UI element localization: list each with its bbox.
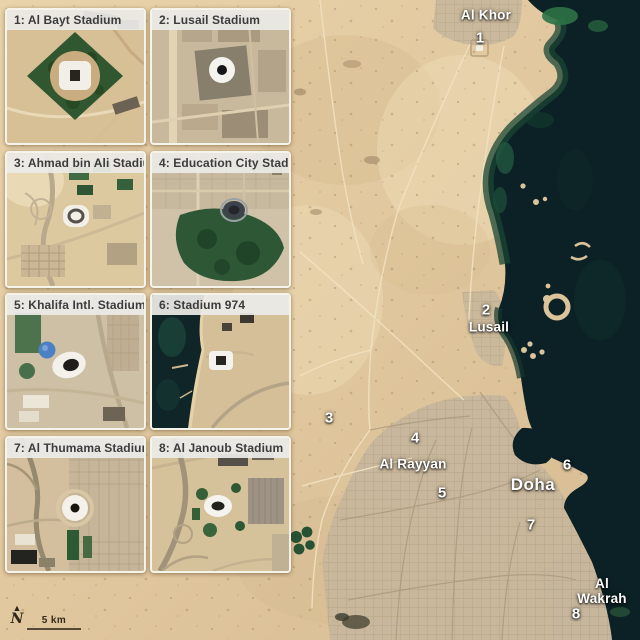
scale-bar-label: 5 km — [27, 615, 81, 626]
map-marker-8: 8 — [572, 606, 580, 623]
map-marker-5: 5 — [438, 485, 446, 502]
map-label-al-khor: Al Khor — [461, 8, 511, 23]
inset-panel-title: 5: Khalifa Intl. Stadium — [7, 295, 144, 315]
inset-panel-khalifa: 5: Khalifa Intl. Stadium — [5, 293, 146, 430]
map-marker-7: 7 — [527, 517, 535, 534]
inset-panel-al-bayt: 1: Al Bayt Stadium — [5, 8, 146, 145]
map-marker-6: 6 — [563, 457, 571, 474]
inset-panel-ahmad-bin-ali: 3: Ahmad bin Ali Stadium — [5, 151, 146, 288]
north-letter: N — [8, 612, 26, 626]
inset-panel-title: 2: Lusail Stadium — [152, 10, 289, 30]
inset-panel-stadium-974: 6: Stadium 974 — [150, 293, 291, 430]
map-label-al-rayyan: Al Rayyan — [379, 457, 446, 472]
qatar-stadiums-map: 1: Al Bayt Stadium 2: Lusail Stadium — [0, 0, 640, 640]
inset-panel-al-janoub: 8: Al Janoub Stadium — [150, 436, 291, 573]
inset-panel-title: 3: Ahmad bin Ali Stadium — [7, 153, 144, 173]
map-label-doha: Doha — [511, 475, 556, 495]
map-label-lusail: Lusail — [469, 320, 509, 335]
inset-panel-al-thumama: 7: Al Thumama Stadium — [5, 436, 146, 573]
scale-bar: 5 km — [27, 615, 81, 630]
map-label-al-wakrah: Al Wakrah — [573, 576, 631, 606]
inset-panel-lusail: 2: Lusail Stadium — [150, 8, 291, 145]
inset-panel-title: 7: Al Thumama Stadium — [7, 438, 144, 458]
inset-panel-title: 4: Education City Stadium — [152, 153, 289, 173]
inset-panel-title: 6: Stadium 974 — [152, 295, 289, 315]
map-marker-4: 4 — [411, 430, 419, 447]
scale-bar-line — [27, 628, 81, 630]
map-marker-1: 1 — [476, 30, 484, 47]
inset-panel-education-city: 4: Education City Stadium — [150, 151, 291, 288]
map-marker-2: 2 — [482, 302, 490, 319]
map-marker-3: 3 — [325, 410, 333, 427]
compass-north-icon: ▲ N — [8, 604, 26, 626]
inset-panel-title: 1: Al Bayt Stadium — [7, 10, 144, 30]
inset-panel-title: 8: Al Janoub Stadium — [152, 438, 289, 458]
